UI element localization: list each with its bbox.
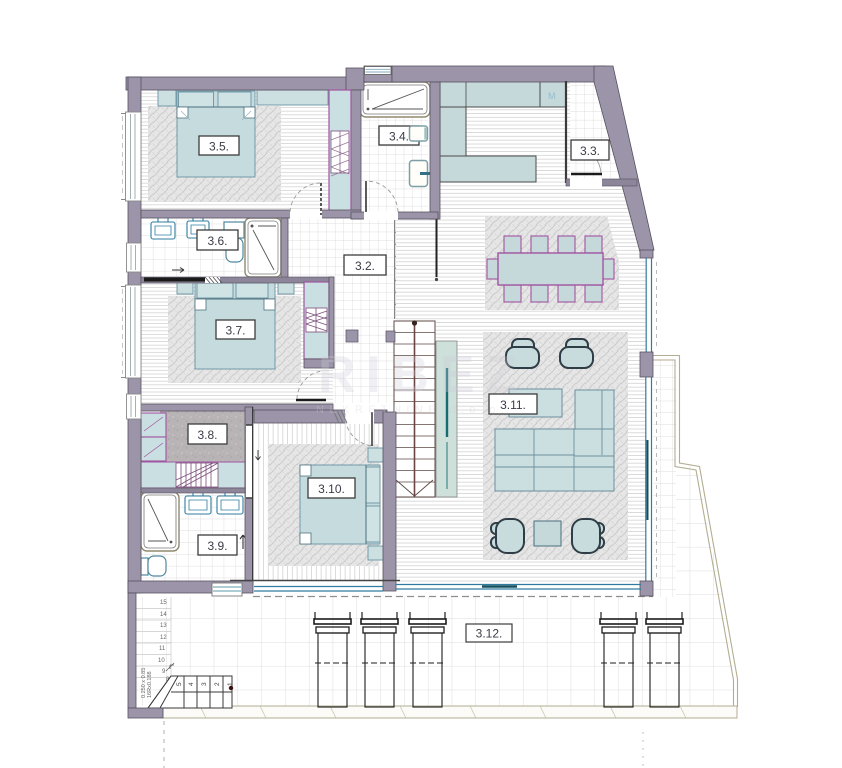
svg-text:12: 12 <box>160 635 167 641</box>
svg-text:3.10.: 3.10. <box>318 482 345 496</box>
svg-text:3.6.: 3.6. <box>207 234 227 248</box>
svg-text:13: 13 <box>160 623 167 629</box>
svg-text:3.5.: 3.5. <box>209 140 229 154</box>
svg-text:3.8.: 3.8. <box>197 428 217 442</box>
svg-text:3.4.: 3.4. <box>389 130 409 144</box>
svg-text:3: 3 <box>201 682 208 686</box>
svg-text:10: 10 <box>158 658 165 664</box>
svg-text:4: 4 <box>188 682 195 686</box>
svg-text:M: M <box>548 91 556 101</box>
svg-text:11: 11 <box>159 646 166 652</box>
svg-text:NEKRETNINE d.o.o.: NEKRETNINE d.o.o. <box>316 404 506 416</box>
svg-text:0.250 x 0.85: 0.250 x 0.85 <box>141 668 147 698</box>
svg-text:15: 15 <box>160 600 167 606</box>
svg-text:2: 2 <box>214 682 221 686</box>
svg-text:RIBEZ: RIBEZ <box>318 346 523 404</box>
svg-text:1: 1 <box>227 682 234 686</box>
svg-text:3.12.: 3.12. <box>476 627 503 641</box>
svg-text:5: 5 <box>176 682 183 686</box>
svg-text:3.9.: 3.9. <box>207 539 227 553</box>
svg-text:3.2.: 3.2. <box>355 259 375 273</box>
svg-text:3.3.: 3.3. <box>580 144 600 158</box>
svg-text:3.7.: 3.7. <box>225 324 245 338</box>
svg-text:16Rx0.188: 16Rx0.188 <box>147 671 153 698</box>
svg-text:14: 14 <box>160 612 167 618</box>
